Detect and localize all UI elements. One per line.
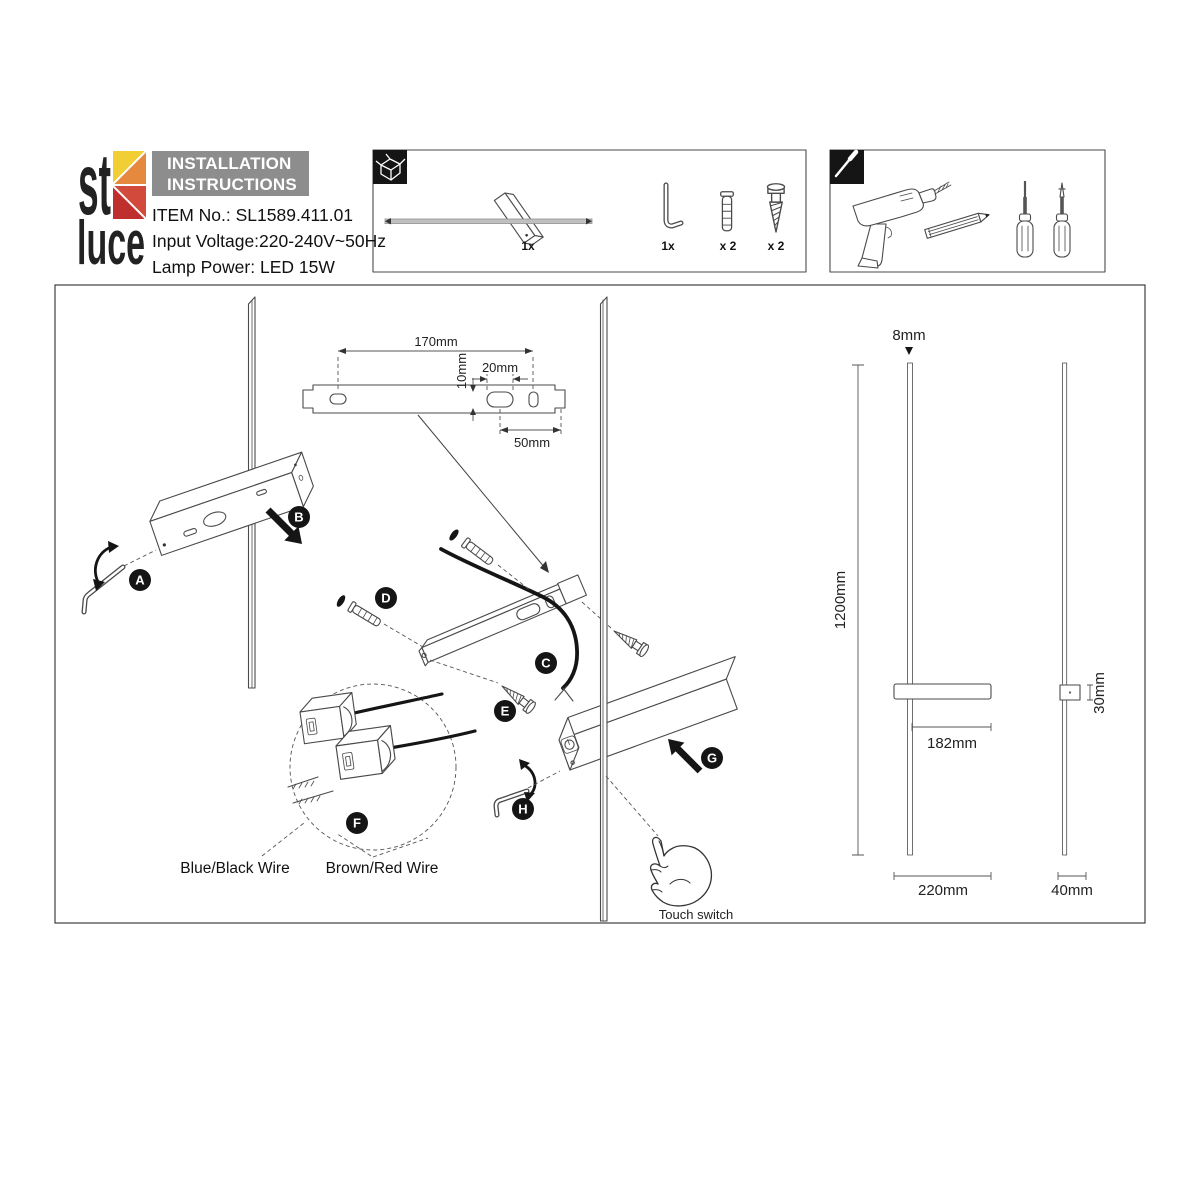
screwdriver-icon	[830, 150, 864, 184]
lamp-housing-g	[553, 657, 752, 770]
step-a-b-illustration: A B	[84, 297, 319, 688]
dim-50mm: 50mm	[514, 435, 550, 450]
step-letter-b: B	[294, 510, 303, 525]
step-badge-c: C	[535, 652, 557, 674]
step-badge-g: G	[701, 747, 723, 769]
title-line-1: INSTALLATION	[167, 153, 309, 174]
screw-qty: x 2	[768, 239, 785, 253]
item-info: ITEM No.: SL1589.411.01 Input Voltage:22…	[152, 202, 386, 280]
step-f-detail: F Blue/Black Wire Brown/Red Wire	[180, 684, 475, 877]
step-badge-b: B	[288, 506, 310, 528]
touch-switch-label: Touch switch	[659, 907, 733, 922]
blue-black-wire-label: Blue/Black Wire	[180, 860, 289, 877]
dim-1200mm: 1200mm	[832, 571, 849, 629]
step-badge-a: A	[129, 569, 151, 591]
lamp-qty: 1x	[521, 239, 535, 253]
step-badge-d: D	[375, 587, 397, 609]
dim-20mm: 20mm	[482, 360, 518, 375]
hex-key-qty: 1x	[661, 239, 675, 253]
dim-10mm: 10mm	[454, 353, 469, 389]
item-number: ITEM No.: SL1589.411.01	[152, 202, 386, 228]
front-view-drawing: 1200mm 8mm 182mm 220mm	[832, 327, 991, 899]
instruction-sheet: st luce 1x	[0, 0, 1200, 1200]
pointing-hand	[651, 837, 712, 905]
installation-instructions-title: INSTALLATION INSTRUCTIONS	[152, 151, 309, 196]
package-wall-plug	[721, 192, 734, 231]
dim-170mm: 170mm	[414, 334, 457, 349]
input-voltage: Input Voltage:220-240V~50Hz	[152, 228, 386, 254]
dim-40mm: 40mm	[1051, 882, 1093, 899]
lamp-power: Lamp Power: LED 15W	[152, 254, 386, 280]
touch-switch-illustration: Touch switch	[606, 776, 733, 922]
step-letter-c: C	[541, 656, 551, 671]
step-letter-g: G	[707, 751, 717, 766]
step-letter-e: E	[501, 704, 510, 719]
hex-key-a	[84, 541, 123, 612]
dim-8mm: 8mm	[892, 327, 925, 344]
title-line-2: INSTRUCTIONS	[167, 174, 309, 195]
step-letter-d: D	[381, 591, 390, 606]
logo-luce-text: luce	[77, 209, 145, 278]
step-letter-a: A	[135, 573, 145, 588]
stripped-wires	[288, 777, 333, 804]
side-view-drawing: 30mm 40mm	[1051, 363, 1108, 899]
dim-182mm: 182mm	[927, 735, 977, 752]
wall-plug-qty: x 2	[720, 239, 737, 253]
step-badge-h: H	[512, 798, 534, 820]
tools-box	[830, 150, 1105, 272]
step-letter-f: F	[353, 816, 361, 831]
package-contents-box: 1x 1x x 2 x 2	[373, 150, 806, 272]
step-badge-f: F	[346, 812, 368, 834]
dim-220mm: 220mm	[918, 882, 968, 899]
step-letter-h: H	[518, 802, 527, 817]
st-luce-logo: st luce	[77, 136, 146, 278]
lamp-rod	[601, 297, 608, 921]
step-badge-e: E	[494, 700, 516, 722]
package-box-icon	[373, 150, 407, 184]
arrow-g	[668, 739, 702, 773]
mounting-plate-drawing: 170mm 20mm 10mm 50mm	[303, 334, 565, 573]
brown-red-wire-label: Brown/Red Wire	[326, 860, 439, 877]
dim-30mm: 30mm	[1091, 672, 1108, 714]
